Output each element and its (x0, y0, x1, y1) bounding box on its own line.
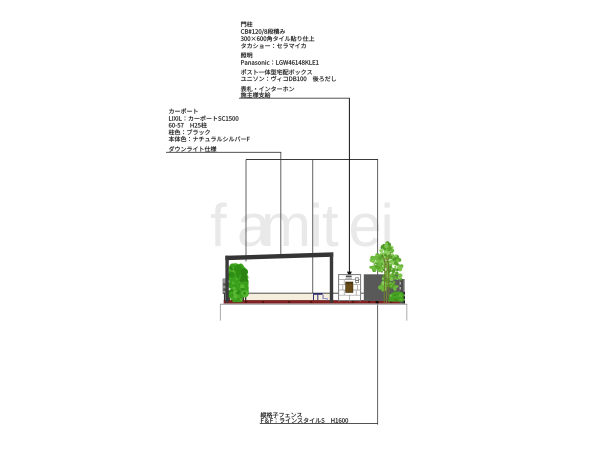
svg-text:famitei: famitei (210, 192, 394, 259)
